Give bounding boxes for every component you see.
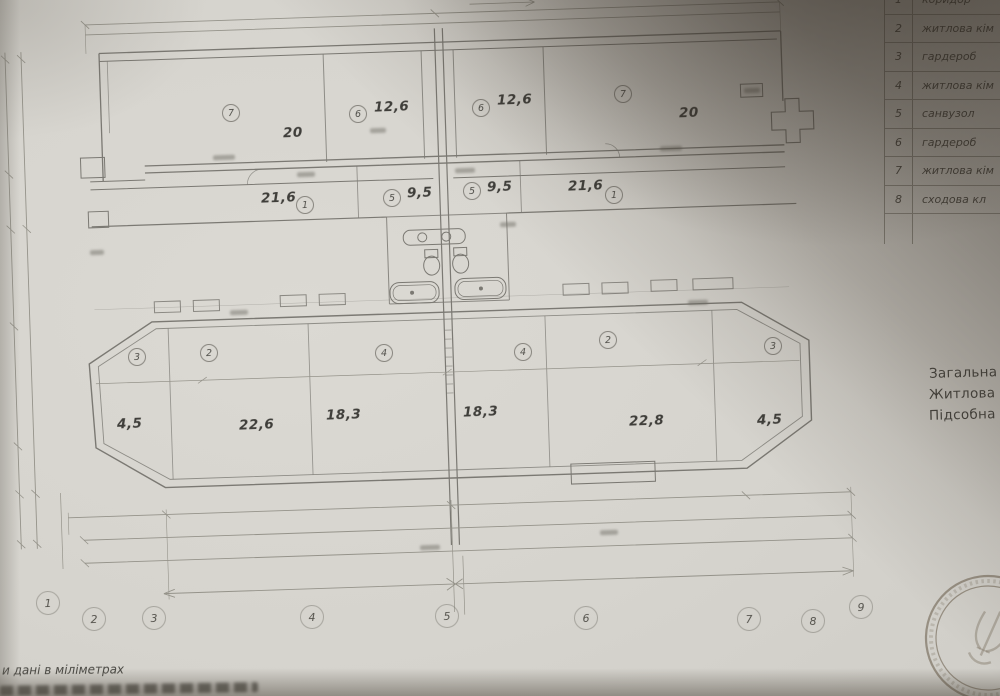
illegible-dimension-text	[660, 146, 682, 152]
window-piers	[94, 276, 789, 315]
chimney-pier	[771, 98, 814, 143]
room-number-cell: 6	[885, 129, 913, 157]
area-summary: Загальна Житлова Підсобна	[929, 363, 997, 426]
room-area-label: 4,5	[117, 416, 143, 433]
room-number-cell: 3	[885, 43, 913, 71]
trident-icon	[964, 606, 1000, 669]
illegible-dimension-text	[500, 222, 516, 228]
illegible-dimension-text	[455, 168, 475, 174]
illegible-dimension-text	[213, 155, 235, 161]
room-area-label: 20	[679, 105, 699, 122]
room-area-label: 21,6	[261, 189, 297, 206]
room-area-label: 9,5	[407, 185, 433, 202]
illegible-dimension-text	[370, 128, 386, 134]
units-note: и дані в міліметрах	[2, 662, 124, 677]
room-name-cell: сходова кл	[913, 186, 1000, 214]
room-name-cell: гардероб	[913, 129, 1000, 157]
illegible-dimension-text	[90, 250, 104, 255]
room-area-label: 18,3	[463, 403, 499, 420]
room-name-cell: гардероб	[913, 43, 1000, 71]
illegible-dimension-text	[744, 88, 760, 94]
table-row: 7 житлова кім	[885, 157, 1000, 186]
room-number-cell: 5	[885, 100, 913, 128]
room-number-cell: 4	[885, 72, 913, 100]
table-row: 4 житлова кім	[885, 72, 1000, 101]
room-area-label: 21,6	[568, 177, 604, 194]
room-area-label: 12,6	[374, 98, 410, 115]
door-arc	[247, 169, 262, 184]
room-schedule-table: 1 коридор 2 житлова кім 3 гардероб 4 жит…	[884, 0, 1000, 244]
toilet-icon	[423, 249, 440, 275]
table-row: 6 гардероб	[885, 129, 1000, 158]
table-row: 1 коридор	[885, 0, 1000, 15]
table-row: 3 гардероб	[885, 43, 1000, 72]
room-name-cell: санвузол	[913, 100, 1000, 128]
table-row: 5 санвузол	[885, 100, 1000, 129]
room-area-label: 4,5	[757, 412, 783, 429]
summary-line: Загальна	[929, 362, 998, 385]
room-number-cell: 8	[885, 186, 913, 214]
room-name-cell	[913, 214, 1000, 244]
room-name-cell: житлова кім	[913, 157, 1000, 185]
table-row	[885, 214, 1000, 244]
illegible-dimension-text	[600, 530, 618, 536]
official-stamp	[900, 563, 1000, 696]
upper-block-walls	[77, 30, 816, 228]
illegible-dimension-text	[297, 172, 315, 178]
table-row: 2 житлова кім	[885, 15, 1000, 44]
room-number-cell: 2	[885, 15, 913, 43]
room-area-label: 12,6	[497, 91, 533, 108]
table-row: 8 сходова кл	[885, 186, 1000, 215]
room-name-cell: житлова кім	[913, 72, 1000, 100]
summary-line: Житлова	[929, 383, 998, 406]
room-name-cell: житлова кім	[913, 15, 1000, 43]
illegible-dimension-text	[420, 545, 440, 551]
room-area-label: 22,8	[629, 412, 665, 429]
bathtub-icon	[390, 281, 440, 304]
illegible-dimension-text	[688, 300, 708, 306]
room-name-cell: коридор	[913, 0, 1000, 14]
sanitary-core	[387, 213, 510, 304]
room-area-label: 20	[283, 125, 303, 142]
room-area-label: 18,3	[326, 406, 362, 423]
dimension-lines	[0, 0, 859, 629]
stamp-ring-text	[919, 569, 1000, 696]
room-number-cell: 7	[885, 157, 913, 185]
room-number-cell	[885, 214, 913, 244]
blueprint-photo: 7 20 6 12,6 6 12,6 7 20 21,6 1 5 9,5 5 9…	[0, 0, 1000, 696]
room-area-label: 22,6	[239, 416, 275, 433]
room-number-cell: 1	[885, 0, 913, 14]
summary-line: Підсобна	[929, 404, 998, 427]
sink-icon	[403, 228, 465, 245]
illegible-dimension-text	[230, 310, 248, 316]
toilet-icon	[452, 247, 469, 273]
room-area-label: 9,5	[487, 179, 513, 196]
